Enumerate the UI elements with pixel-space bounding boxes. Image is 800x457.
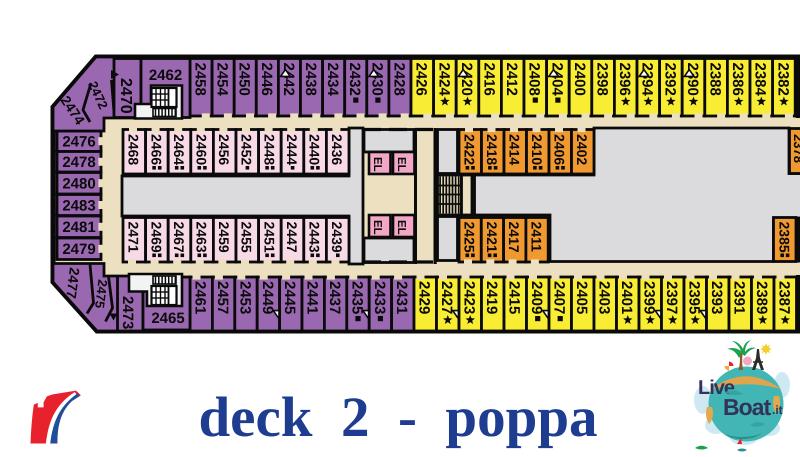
svg-text:2429: 2429 <box>416 281 433 314</box>
svg-text:2396: 2396 <box>616 63 633 96</box>
svg-text:2449: 2449 <box>259 281 276 314</box>
svg-text:2433: 2433 <box>371 281 388 314</box>
svg-text:2390: 2390 <box>684 63 701 96</box>
svg-text:2435: 2435 <box>348 281 365 314</box>
svg-text:2423: 2423 <box>461 281 478 314</box>
svg-text:2428: 2428 <box>390 63 407 96</box>
svg-text:2405: 2405 <box>573 281 590 314</box>
svg-text:2378: 2378 <box>791 134 800 163</box>
svg-text:2397: 2397 <box>663 281 680 314</box>
svg-text:2387: 2387 <box>776 281 793 314</box>
svg-text:2478: 2478 <box>62 154 95 171</box>
svg-text:2388: 2388 <box>707 63 724 96</box>
svg-text:2434: 2434 <box>324 63 341 97</box>
svg-text:2457: 2457 <box>214 281 231 314</box>
svg-text:2480: 2480 <box>62 176 95 193</box>
svg-text:2466: 2466 <box>148 134 164 165</box>
svg-text:2416: 2416 <box>481 63 498 96</box>
svg-text:2415: 2415 <box>506 281 523 314</box>
svg-text:2411: 2411 <box>528 222 544 253</box>
svg-text:2445: 2445 <box>281 281 298 314</box>
svg-text:2473: 2473 <box>119 296 136 329</box>
svg-text:2401: 2401 <box>618 281 635 314</box>
svg-text:2395: 2395 <box>686 281 703 314</box>
svg-text:2426: 2426 <box>413 63 430 96</box>
svg-text:2471: 2471 <box>126 222 142 253</box>
svg-text:2427: 2427 <box>438 281 455 314</box>
svg-text:2469: 2469 <box>148 222 164 253</box>
svg-text:2442: 2442 <box>280 63 297 96</box>
svg-text:EL: EL <box>395 220 407 235</box>
svg-text:2440: 2440 <box>307 134 323 165</box>
svg-text:2439: 2439 <box>329 222 345 253</box>
svg-text:2444: 2444 <box>284 134 300 165</box>
svg-text:2386: 2386 <box>729 63 746 96</box>
svg-text:2461: 2461 <box>192 281 209 314</box>
svg-text:2400: 2400 <box>571 63 588 96</box>
svg-text:2425: 2425 <box>462 222 478 253</box>
svg-text:2479: 2479 <box>62 241 95 258</box>
svg-text:2407: 2407 <box>551 281 568 314</box>
svg-text:2454: 2454 <box>214 63 231 97</box>
svg-text:2402: 2402 <box>574 134 590 165</box>
svg-text:2430: 2430 <box>368 63 385 96</box>
svg-text:2467: 2467 <box>171 222 187 253</box>
svg-text:2463: 2463 <box>194 222 210 253</box>
svg-text:2410: 2410 <box>529 134 545 165</box>
svg-text:2392: 2392 <box>661 63 678 96</box>
svg-text:2455: 2455 <box>239 222 255 253</box>
svg-text:2408: 2408 <box>526 63 543 96</box>
svg-text:2441: 2441 <box>304 281 321 314</box>
svg-text:2421: 2421 <box>484 222 500 253</box>
svg-text:2483: 2483 <box>62 197 95 214</box>
svg-text:2465: 2465 <box>151 310 184 327</box>
svg-text:2424: 2424 <box>435 63 452 97</box>
svg-text:EL: EL <box>371 220 383 235</box>
svg-text:2460: 2460 <box>194 134 210 165</box>
svg-text:2438: 2438 <box>302 63 319 96</box>
svg-text:2393: 2393 <box>708 281 725 314</box>
svg-text:2446: 2446 <box>258 63 275 96</box>
svg-text:2431: 2431 <box>393 281 410 314</box>
svg-text:2419: 2419 <box>483 281 500 314</box>
svg-text:2437: 2437 <box>326 281 343 314</box>
svg-text:2459: 2459 <box>216 222 232 253</box>
svg-text:2403: 2403 <box>596 281 613 314</box>
svg-text:2422: 2422 <box>462 134 478 165</box>
svg-text:2418: 2418 <box>484 134 500 165</box>
svg-text:2414: 2414 <box>507 134 523 165</box>
svg-text:2391: 2391 <box>731 281 748 314</box>
svg-text:2448: 2448 <box>261 134 277 165</box>
svg-text:2453: 2453 <box>236 281 253 314</box>
svg-text:2456: 2456 <box>216 134 232 165</box>
svg-text:2385: 2385 <box>776 222 792 253</box>
svg-text:2481: 2481 <box>62 219 95 236</box>
svg-text:Boat: Boat <box>723 394 771 420</box>
svg-text:2384: 2384 <box>752 63 769 97</box>
svg-text:deck 2 - poppa: deck 2 - poppa <box>198 386 597 449</box>
svg-text:2443: 2443 <box>307 222 323 253</box>
svg-text:2436: 2436 <box>329 134 345 165</box>
svg-text:2409: 2409 <box>528 281 545 314</box>
svg-text:2470: 2470 <box>117 78 134 114</box>
svg-text:2399: 2399 <box>641 281 658 314</box>
svg-text:2458: 2458 <box>192 63 209 96</box>
svg-text:2420: 2420 <box>458 63 475 96</box>
svg-text:2398: 2398 <box>594 63 611 96</box>
svg-text:EL: EL <box>395 157 407 172</box>
svg-text:2389: 2389 <box>753 281 770 314</box>
svg-text:2406: 2406 <box>552 134 568 165</box>
svg-text:.it: .it <box>772 403 783 417</box>
svg-text:2394: 2394 <box>639 63 656 97</box>
svg-text:2452: 2452 <box>239 134 255 165</box>
svg-text:2432: 2432 <box>346 63 363 96</box>
svg-text:2382: 2382 <box>774 63 791 96</box>
svg-text:2451: 2451 <box>261 222 277 253</box>
svg-text:2417: 2417 <box>506 222 522 253</box>
svg-text:2412: 2412 <box>503 63 520 96</box>
svg-text:2404: 2404 <box>548 63 565 97</box>
svg-text:EL: EL <box>371 157 383 172</box>
svg-text:2447: 2447 <box>284 222 300 253</box>
svg-text:2450: 2450 <box>236 63 253 96</box>
svg-text:2464: 2464 <box>171 134 187 165</box>
svg-text:2468: 2468 <box>126 134 142 165</box>
svg-text:2476: 2476 <box>62 134 95 151</box>
svg-text:2462: 2462 <box>149 67 182 84</box>
